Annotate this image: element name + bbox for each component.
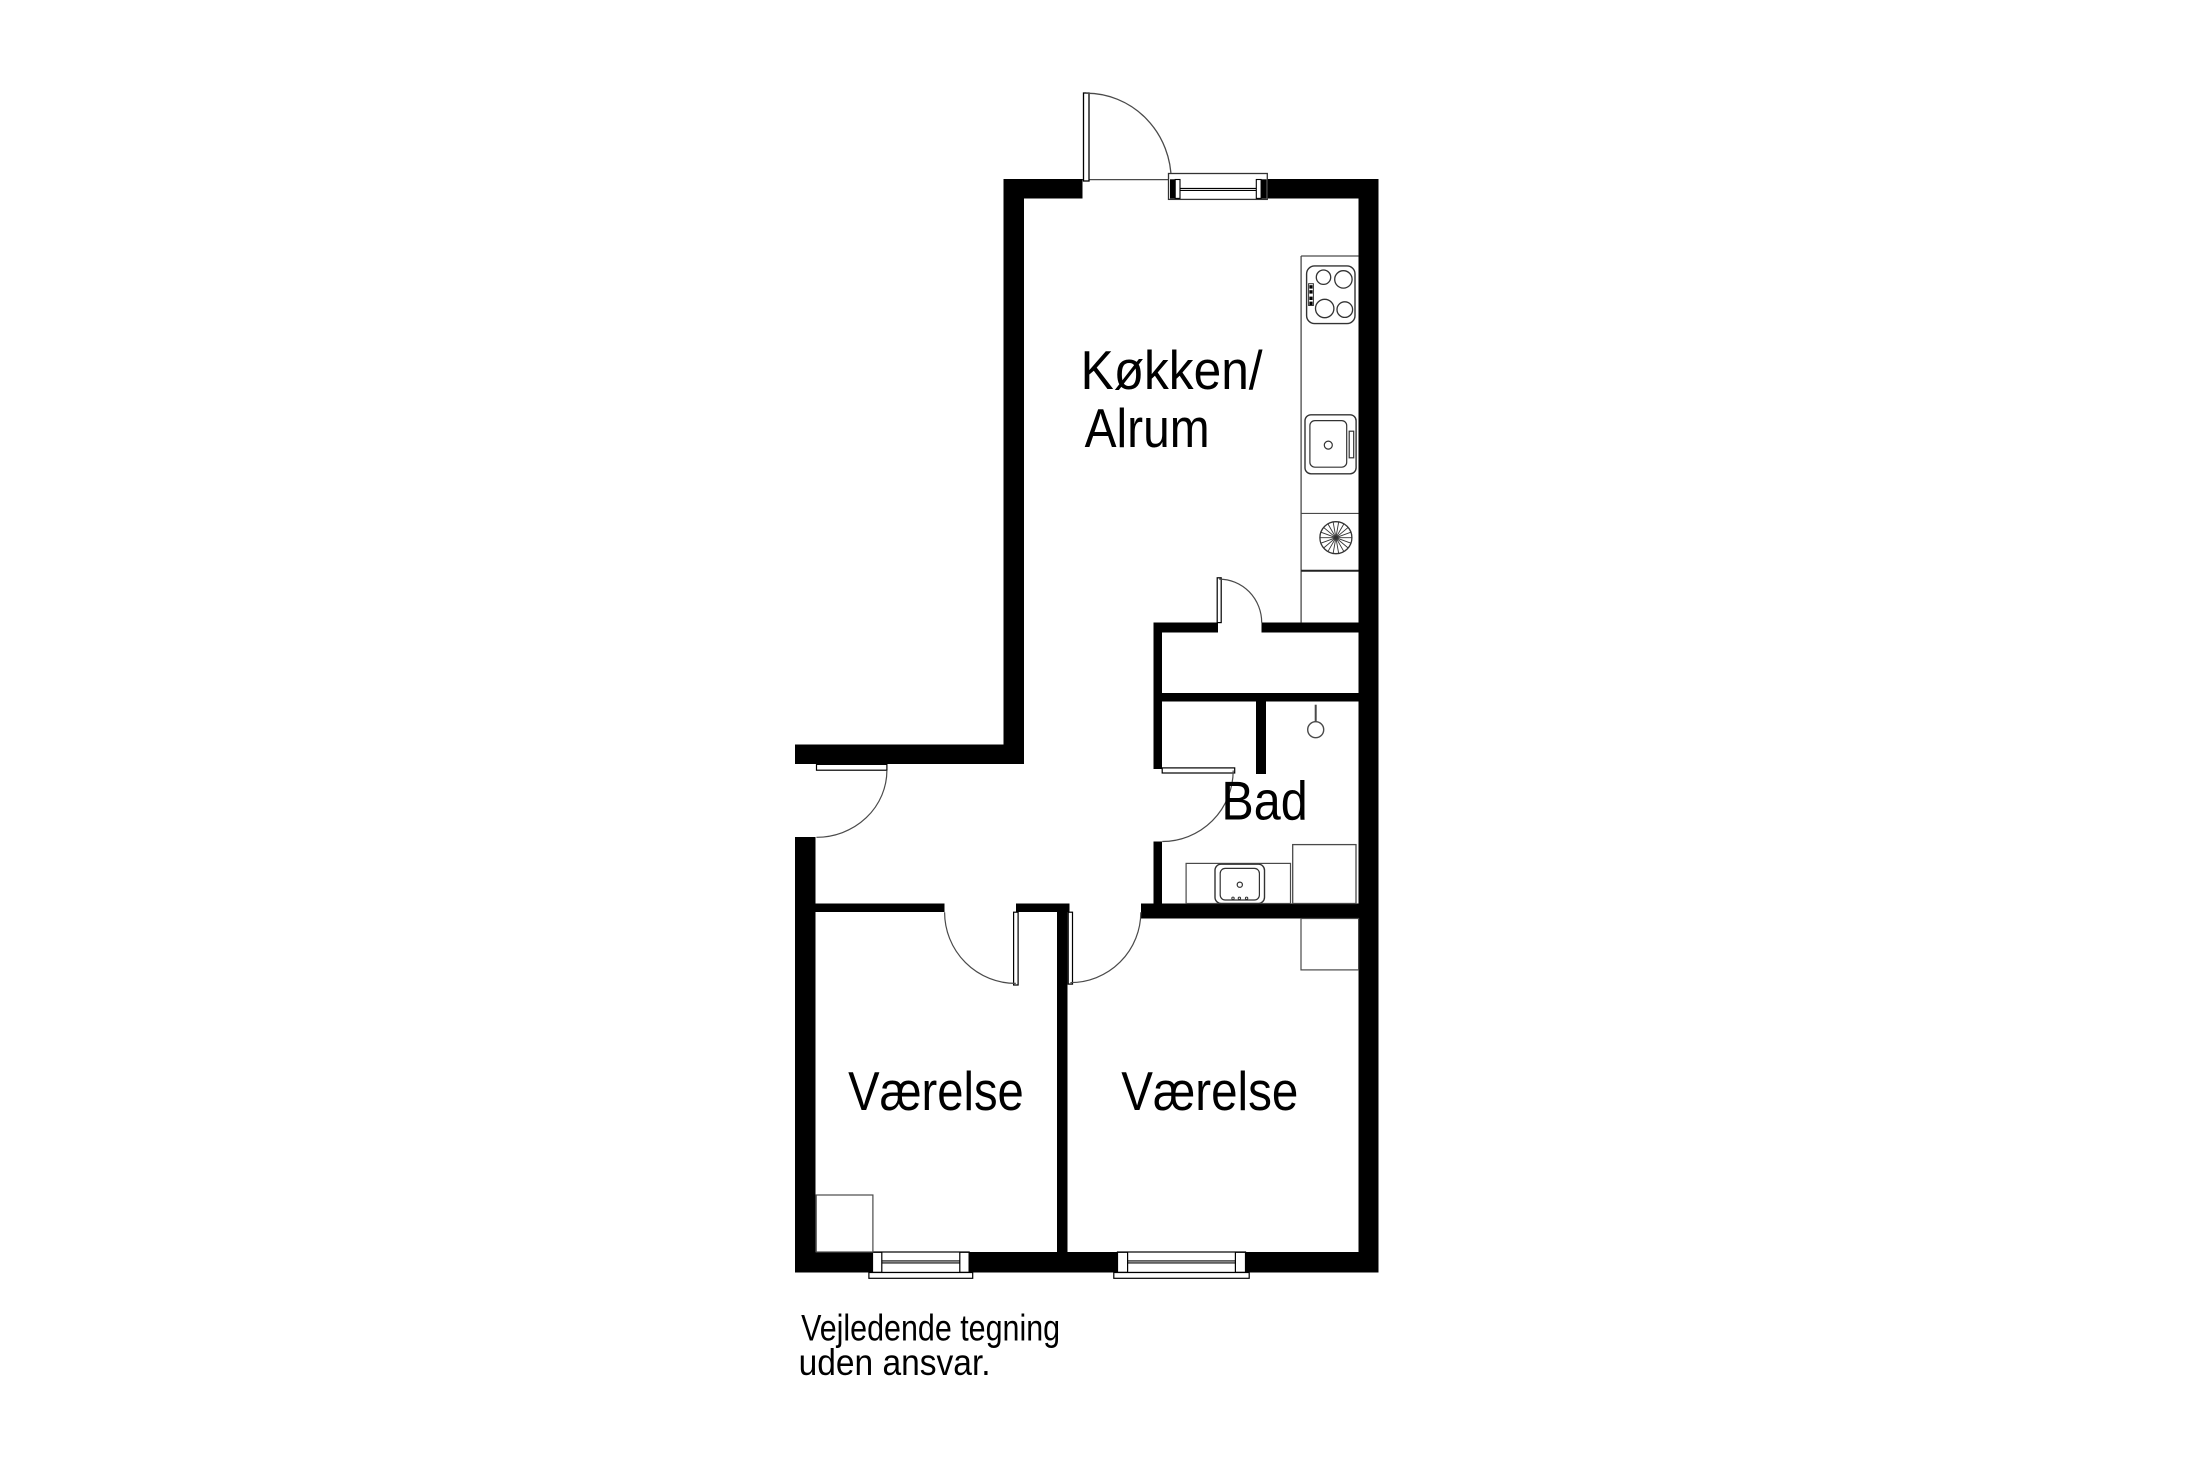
svg-text:Alrum: Alrum bbox=[1085, 398, 1210, 459]
svg-text:Køkken/: Køkken/ bbox=[1081, 340, 1264, 401]
svg-text:Bad: Bad bbox=[1221, 770, 1307, 831]
svg-text:uden ansvar.: uden ansvar. bbox=[799, 1342, 991, 1383]
svg-text:Værelse: Værelse bbox=[848, 1061, 1024, 1122]
svg-text:Værelse: Værelse bbox=[1121, 1061, 1298, 1122]
